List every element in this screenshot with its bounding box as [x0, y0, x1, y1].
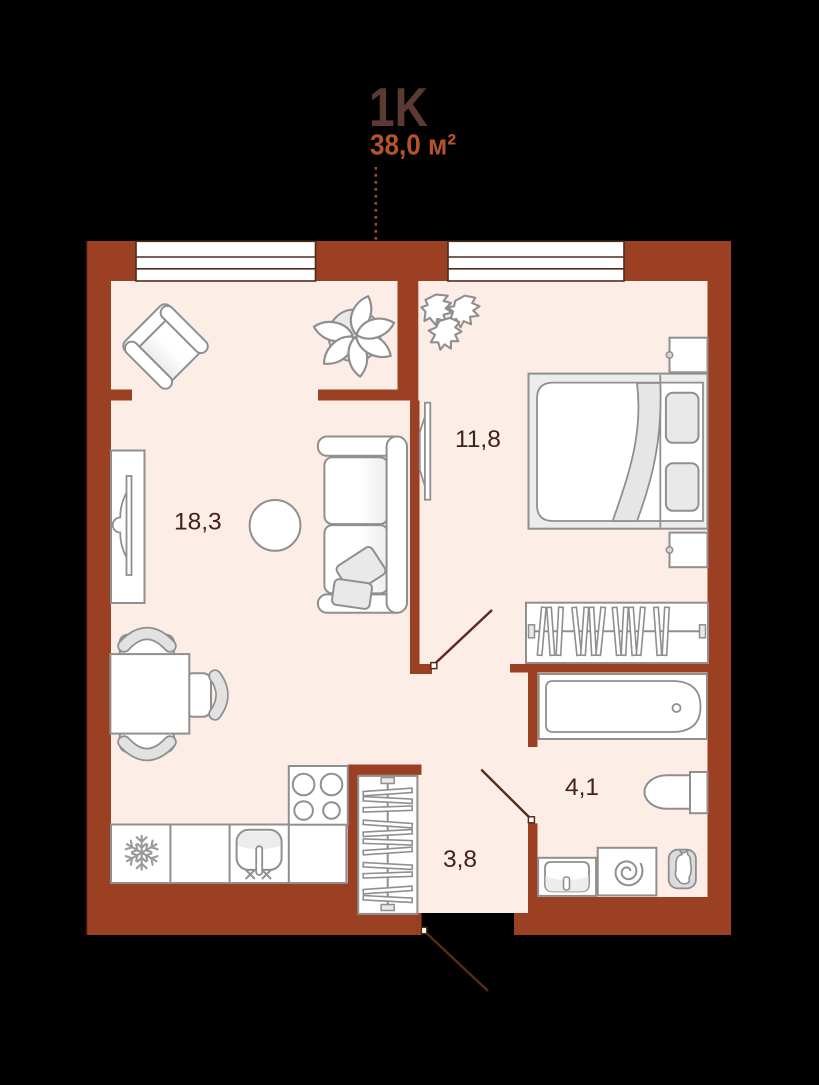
- svg-text:4,1: 4,1: [565, 774, 599, 801]
- svg-text:38,0 м²: 38,0 м²: [370, 130, 456, 162]
- svg-text:11,8: 11,8: [455, 426, 501, 453]
- svg-text:18,3: 18,3: [174, 509, 222, 536]
- svg-text:3,8: 3,8: [443, 846, 477, 873]
